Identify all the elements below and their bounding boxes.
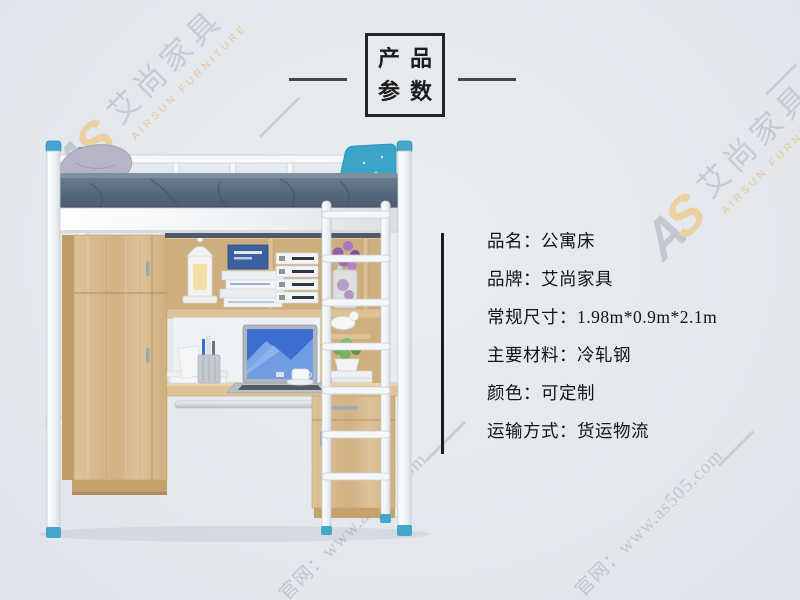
spec-row: 颜色：可定制	[487, 374, 717, 412]
spec-value: 艾尚家具	[541, 269, 613, 289]
spec-label: 常规尺寸：	[487, 307, 577, 327]
spec-value: 1.98m*0.9m*2.1m	[577, 307, 717, 327]
spec-value: 公寓床	[541, 231, 595, 251]
watermark-line	[718, 430, 754, 466]
title-line1: 产品	[368, 42, 442, 75]
spec-row: 品牌：艾尚家具	[487, 260, 717, 298]
title-dash-right	[458, 78, 516, 81]
title-dash-left	[289, 78, 347, 81]
mattress	[58, 173, 400, 212]
books-stack	[220, 271, 284, 307]
watermark-line	[425, 421, 466, 462]
product-image	[30, 133, 430, 545]
book-box	[228, 245, 268, 269]
title-line2: 参数	[368, 75, 442, 108]
brand-name-en: AIRSUN FURNITURE	[129, 22, 250, 143]
spec-label: 主要材料：	[487, 345, 577, 365]
bed-leg-front-left	[46, 141, 61, 538]
spec-value: 可定制	[541, 383, 595, 403]
spec-label: 颜色：	[487, 383, 541, 403]
spec-row: 主要材料：冷轧钢	[487, 336, 717, 374]
spec-list: 品名：公寓床 品牌：艾尚家具 常规尺寸：1.98m*0.9m*2.1m 主要材料…	[487, 222, 717, 450]
spec-value: 冷轧钢	[577, 345, 631, 365]
product-params-title: 产品 参数	[365, 33, 445, 117]
brand-name-cn: 艾尚家具	[95, 0, 239, 132]
spec-row: 品名：公寓床	[487, 222, 717, 260]
wardrobe	[62, 235, 167, 495]
bed-leg-right	[397, 141, 412, 536]
watermark-line	[765, 64, 796, 95]
watermark-line	[259, 97, 300, 138]
laptop	[227, 325, 333, 393]
page: AS 艾尚家具 AIRSUN FURNITURE AS 艾尚家具 AIRSUN …	[0, 0, 800, 600]
site-watermark: 官网：www.as505.com	[557, 431, 739, 600]
brand-text: 艾尚家具 AIRSUN FURNITURE	[95, 0, 250, 143]
spec-row: 运输方式：货运物流	[487, 412, 717, 450]
floor-shadow	[39, 526, 430, 542]
spec-label: 运输方式：	[487, 421, 577, 441]
spec-row: 常规尺寸：1.98m*0.9m*2.1m	[487, 298, 717, 336]
spec-value: 货运物流	[577, 421, 649, 441]
spec-label: 品名：	[487, 231, 541, 251]
brand-text: 艾尚家具 AIRSUN FURNITURE	[685, 62, 800, 217]
spec-label: 品牌：	[487, 269, 541, 289]
specs-divider	[441, 233, 444, 454]
brand-name-en: AIRSUN FURNITURE	[719, 96, 800, 217]
brand-name-cn: 艾尚家具	[685, 62, 800, 206]
